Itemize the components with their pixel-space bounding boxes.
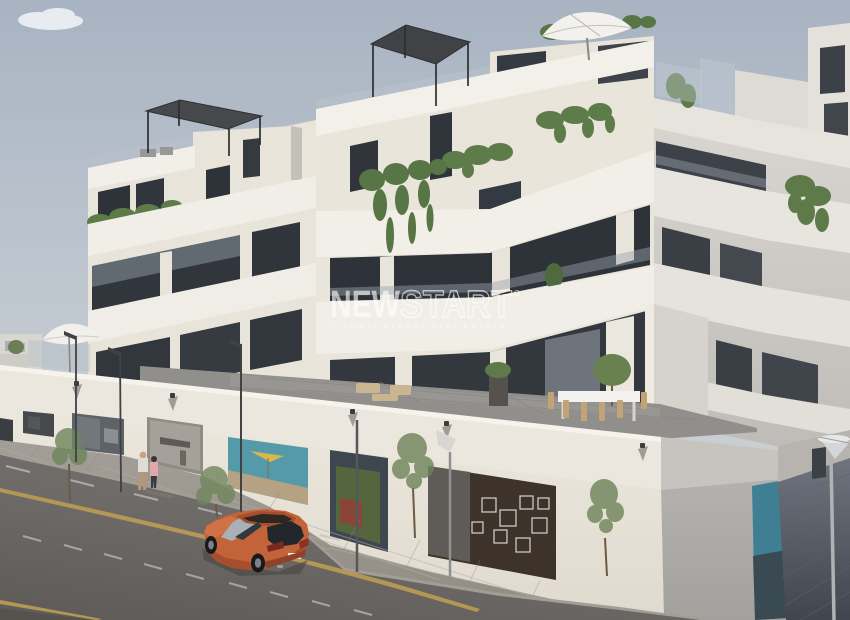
svg-text:START: START (400, 284, 512, 326)
svg-text:NEW: NEW (330, 284, 400, 326)
svg-text:— C O S T A B L A N C A R E: — C O S T A B L A N C A R E A L E S T A … (330, 324, 517, 330)
